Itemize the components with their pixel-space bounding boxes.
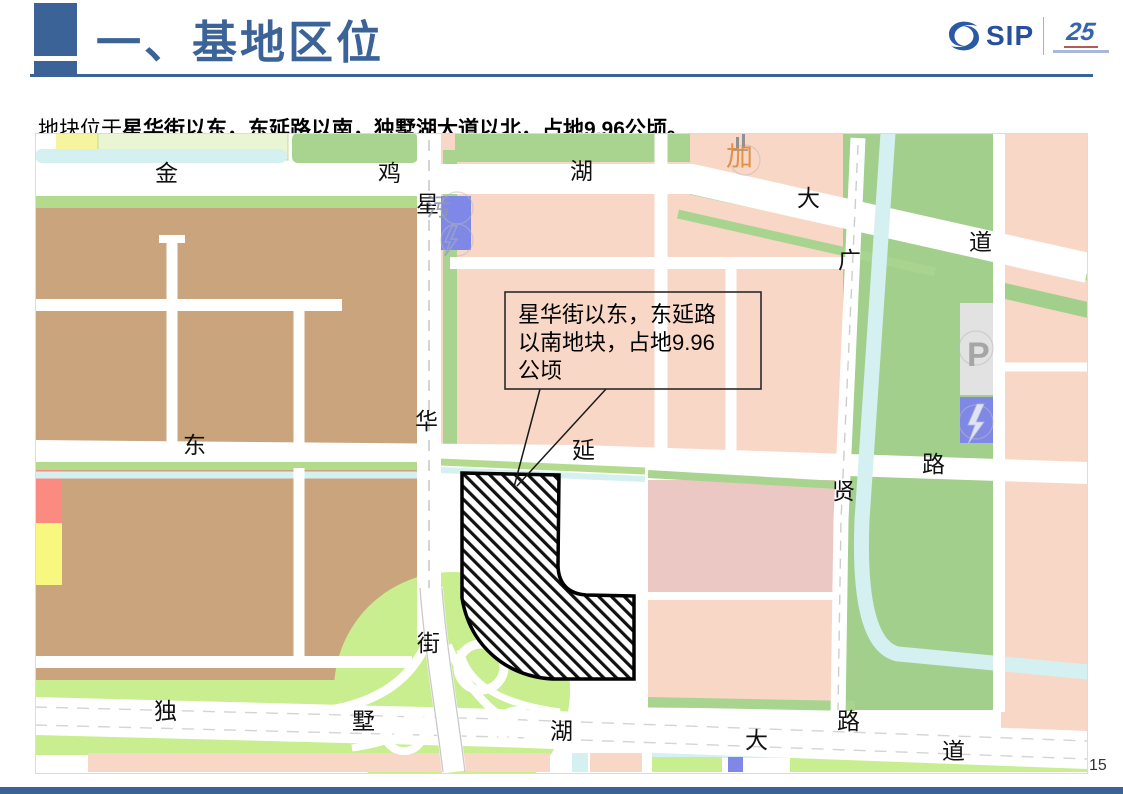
title-underline <box>30 74 1093 77</box>
sip-logo-text: SIP <box>986 20 1034 52</box>
anniversary-mark: 25 <box>1053 20 1109 53</box>
logo-divider <box>1043 17 1044 55</box>
anniversary-number: 25 <box>1066 20 1097 44</box>
location-map-canvas: 星华街以东，东延路以南地块，占地9.96公顷 金鸡湖星大广道东华延路贤街独墅湖大… <box>35 133 1088 774</box>
map-road-label: 街 <box>417 630 440 656</box>
map-road-label: 道 <box>942 738 965 764</box>
page-title: 一、基地区位 <box>96 6 384 71</box>
title-decoration-bar <box>34 61 77 74</box>
map-road-label: 湖 <box>550 718 573 744</box>
map-road-label: 道 <box>969 229 992 255</box>
sip-logo: SIP 25 <box>946 12 1109 60</box>
page-number: 15 <box>1089 757 1107 775</box>
map-poi-label: P <box>967 336 990 374</box>
map-road-label: 东 <box>183 432 206 458</box>
sip-swoosh-icon <box>946 19 982 53</box>
map-road-label: 延 <box>572 437 595 463</box>
map-road-label: 独 <box>154 698 177 724</box>
map-road-label: 大 <box>745 727 768 753</box>
map-poi-label: 加 <box>726 142 753 172</box>
map-road-label: 贤 <box>832 478 855 504</box>
map-road-label: 大 <box>797 185 820 211</box>
logo-fine-print-line2 <box>1053 50 1109 53</box>
map-road-label: 金 <box>155 160 178 186</box>
title-decoration-square <box>34 3 77 56</box>
map-road-label: 华 <box>415 408 438 434</box>
map-road-label: 路 <box>837 708 860 734</box>
bottom-accent-bar <box>0 787 1123 794</box>
map-road-label: 湖 <box>570 158 593 184</box>
map-road-label: 路 <box>922 451 945 477</box>
location-map: 星华街以东，东延路以南地块，占地9.96公顷 金鸡湖星大广道东华延路贤街独墅湖大… <box>35 133 1088 774</box>
map-road-label: 广 <box>838 247 861 273</box>
map-road-label: 鸡 <box>378 160 401 186</box>
map-road-label: 墅 <box>352 708 375 734</box>
map-poi-label: 污 <box>426 194 451 222</box>
